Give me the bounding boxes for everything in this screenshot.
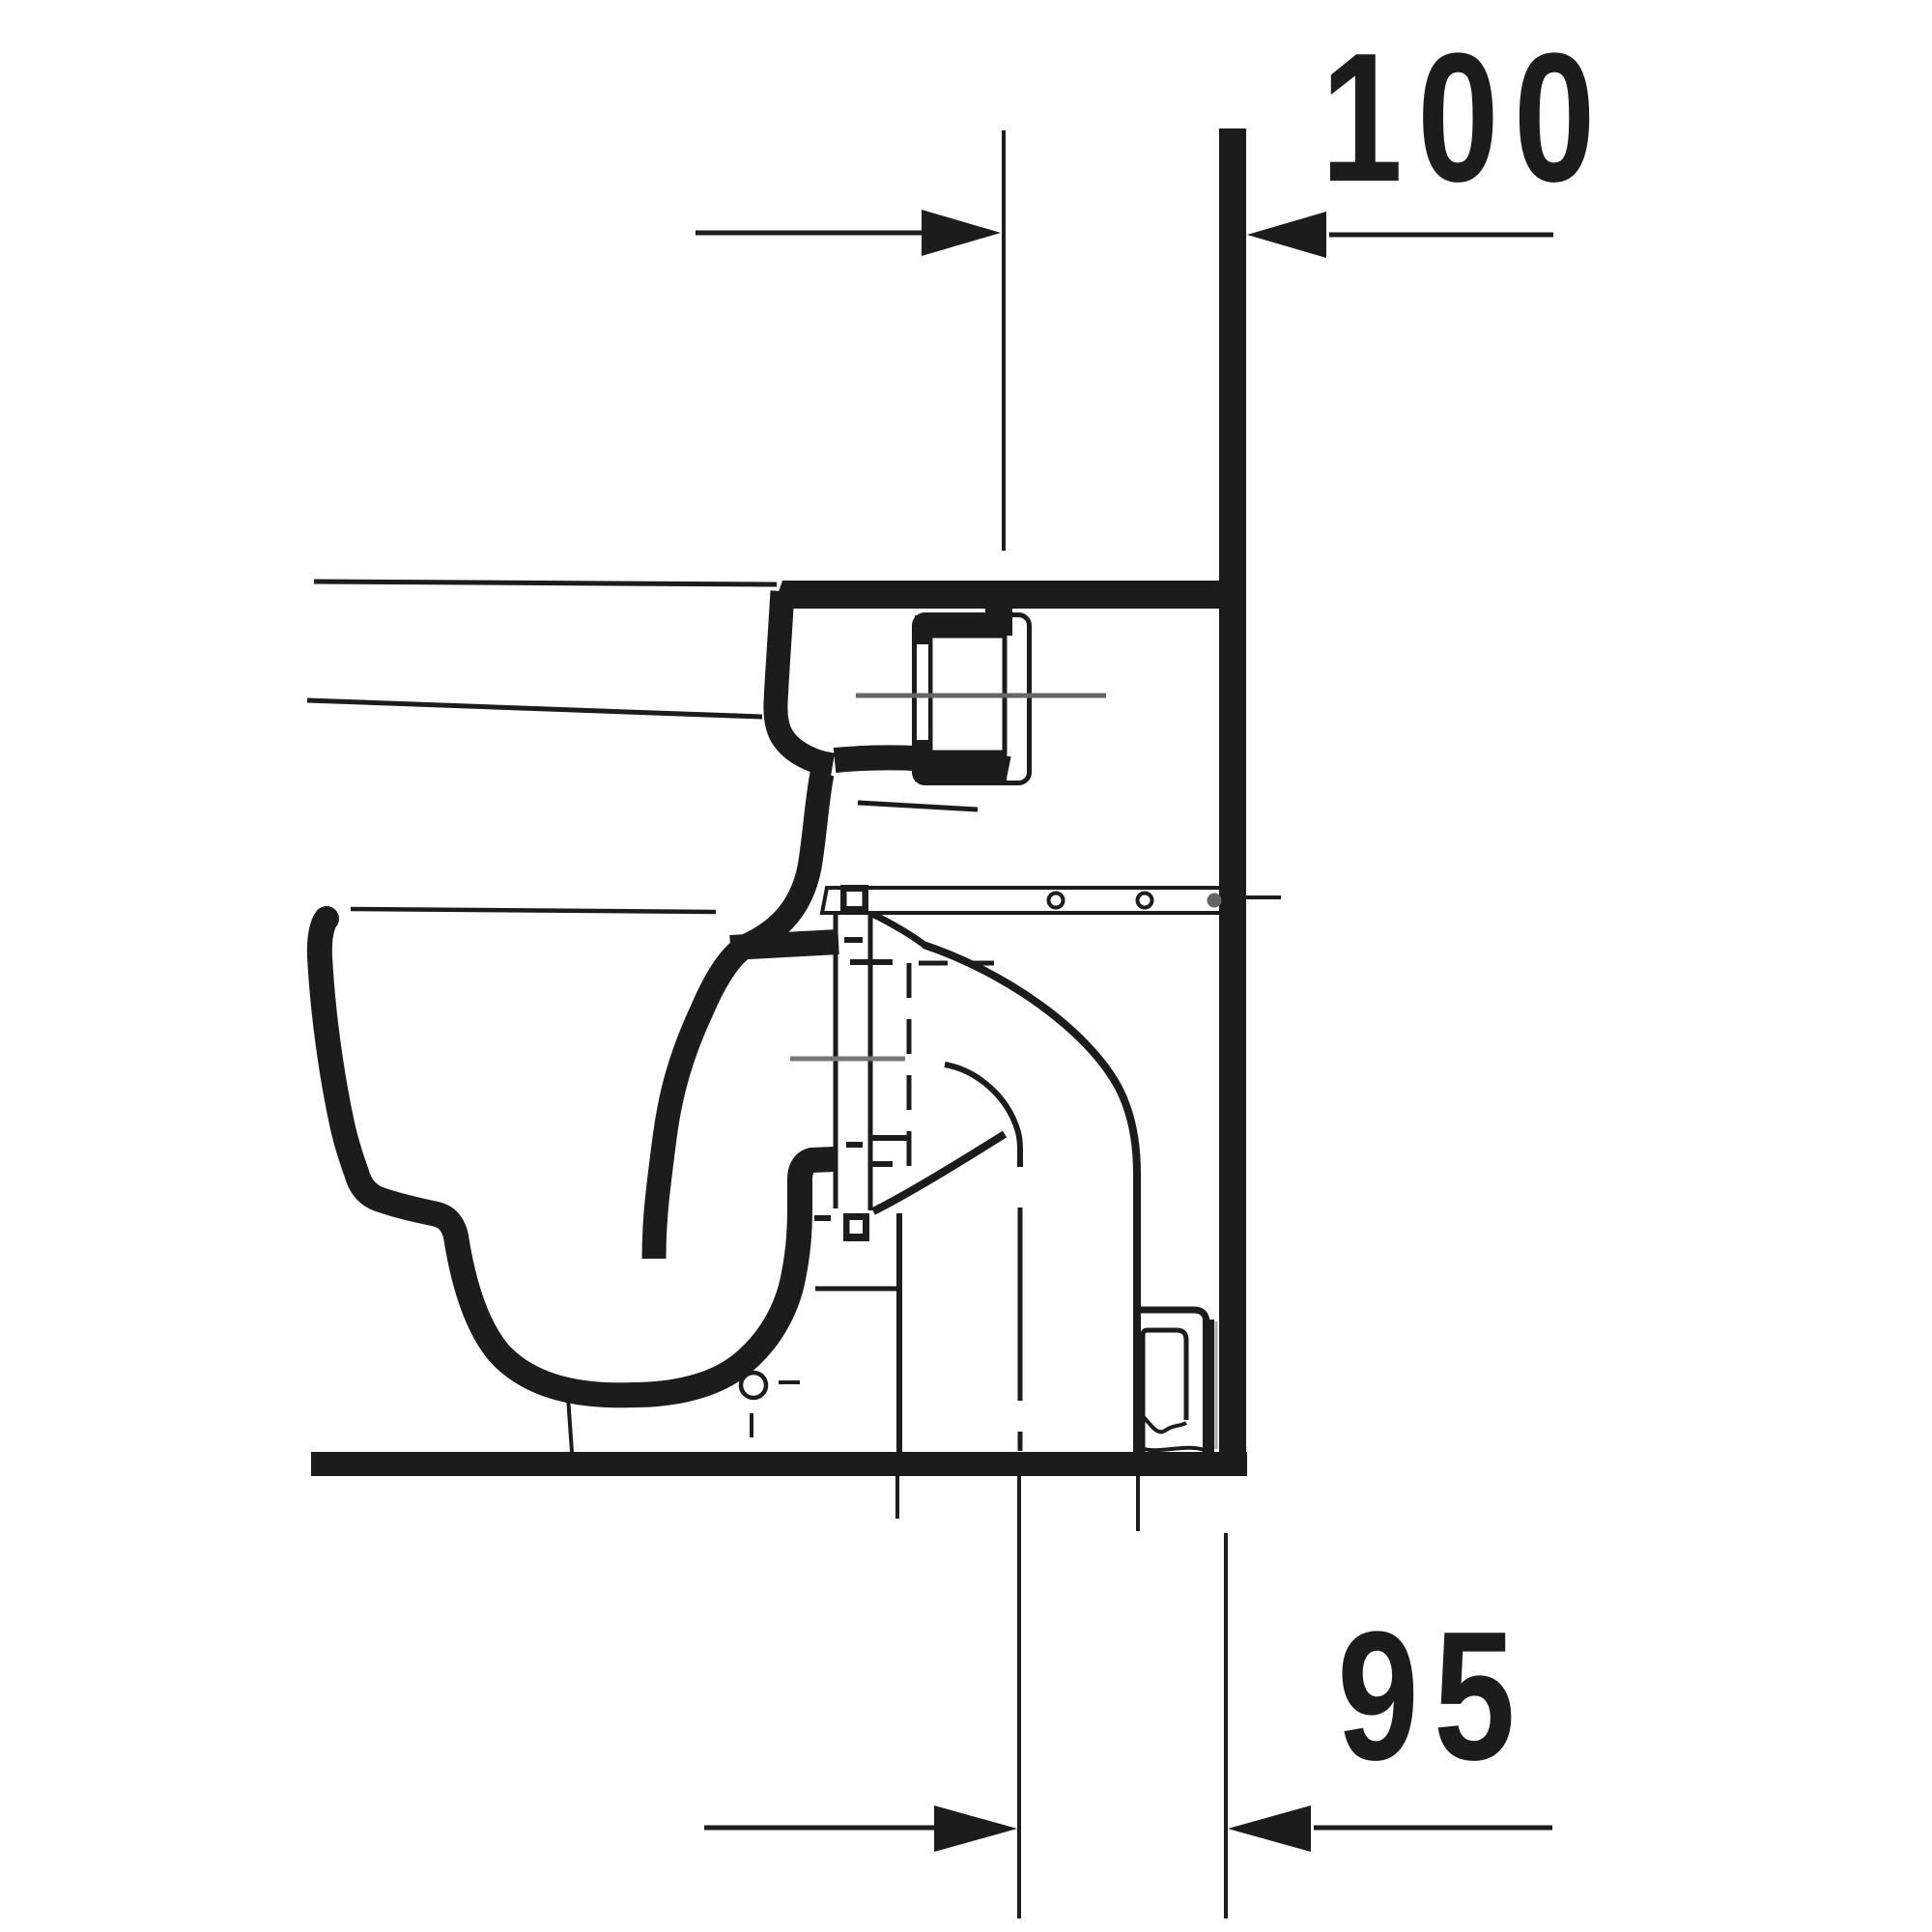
svg-text:95: 95: [1337, 1594, 1529, 1799]
svg-text:100: 100: [1321, 15, 1609, 220]
